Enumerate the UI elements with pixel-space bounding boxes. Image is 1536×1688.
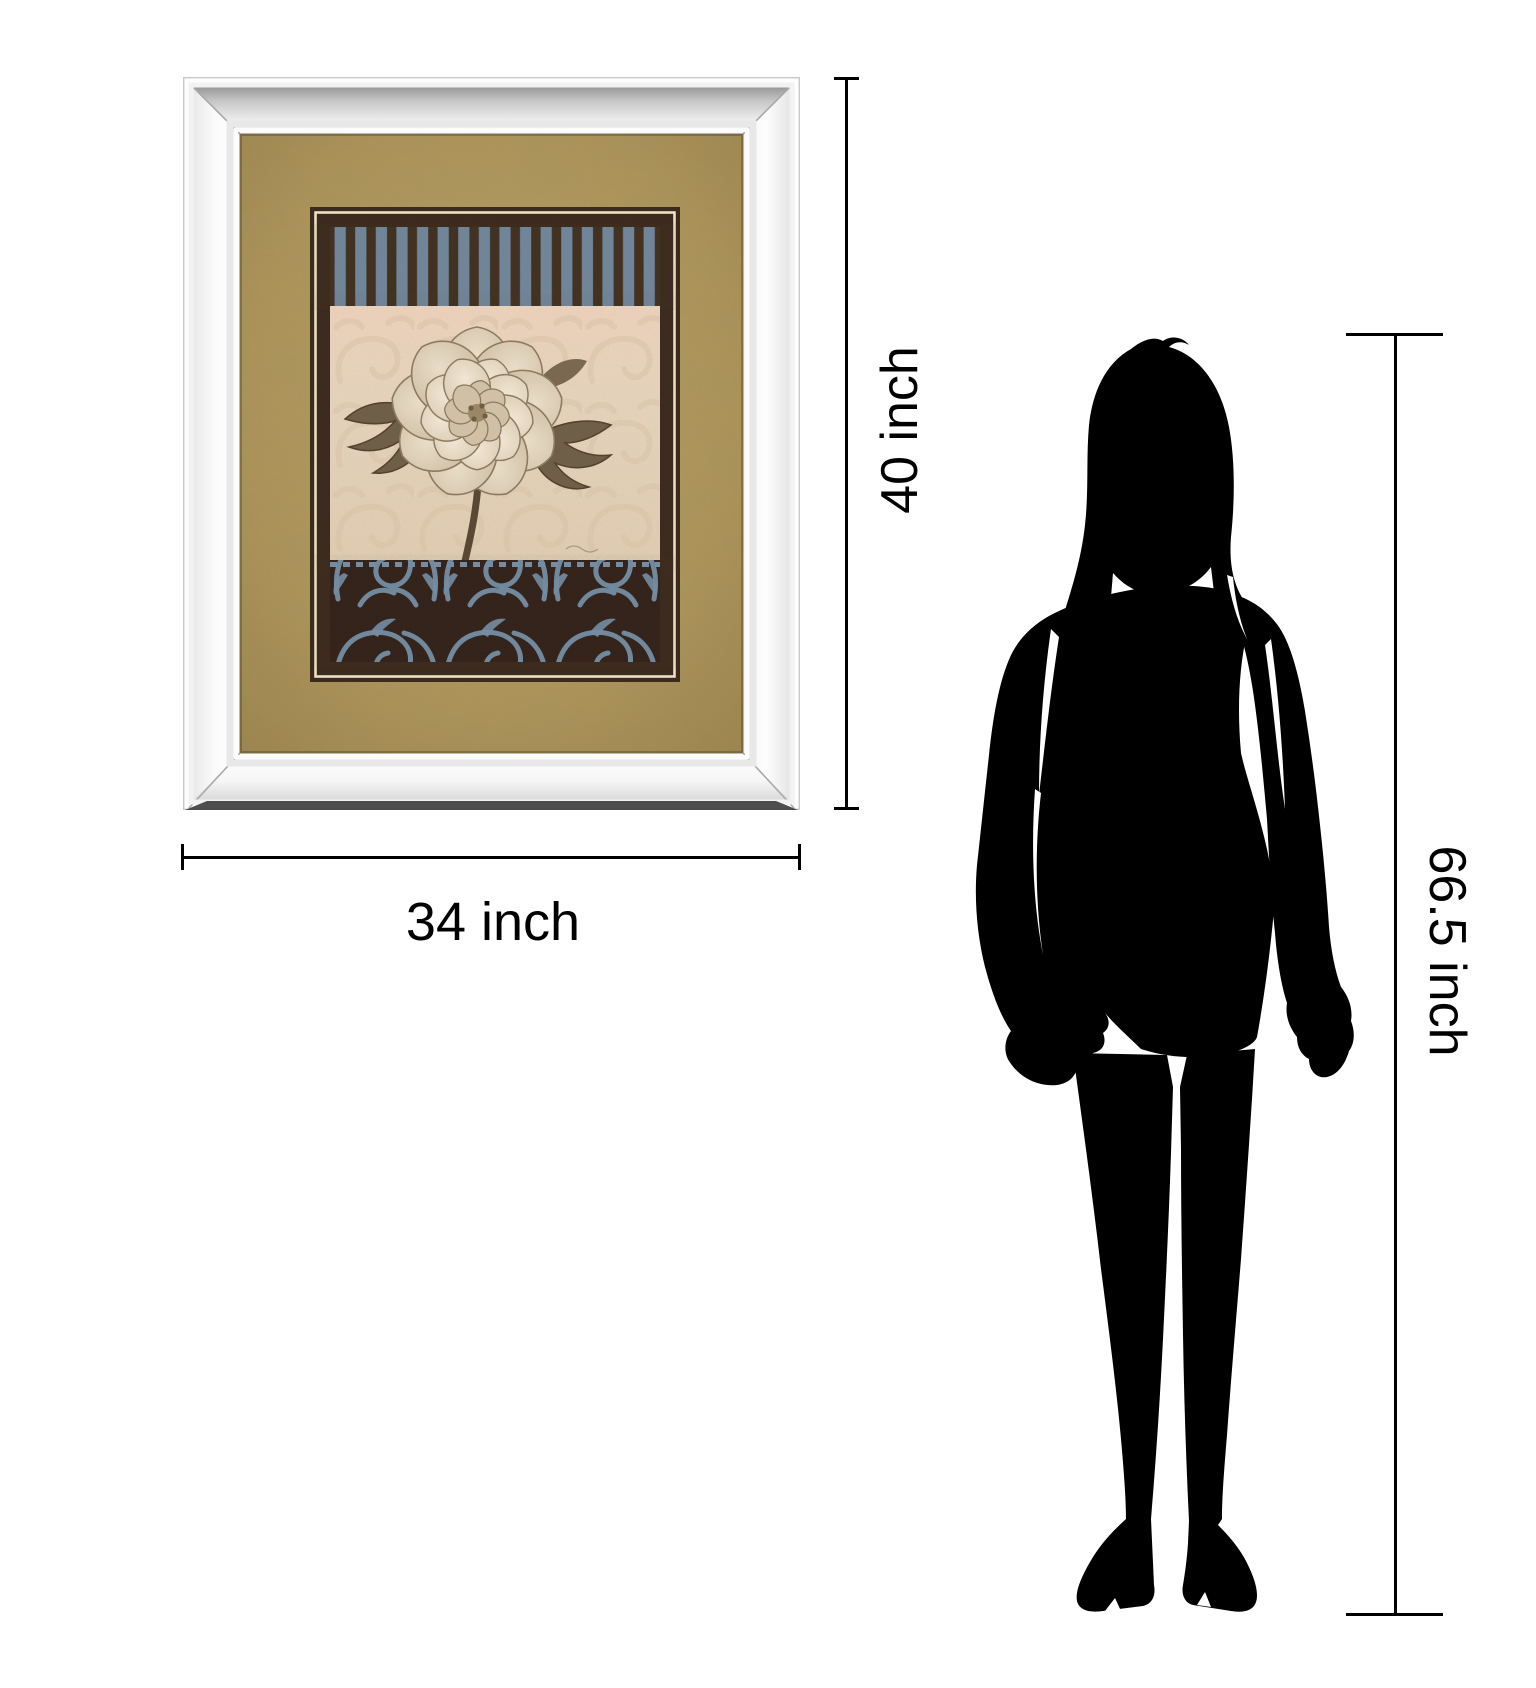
art-print xyxy=(310,207,680,682)
artwork-height-label: 40 inch xyxy=(873,343,927,517)
person-silhouette xyxy=(935,337,1360,1612)
person-height-dimension-line xyxy=(1394,334,1397,1615)
artwork-width-dimension-cap-left xyxy=(181,844,184,870)
woman-silhouette-shape xyxy=(976,338,1354,1612)
artwork-height-dimension-line xyxy=(845,78,848,808)
artwork-height-dimension-cap-bottom xyxy=(834,807,859,810)
artwork-height-dimension-cap-top xyxy=(834,77,859,80)
person-height-dimension-cap-bottom xyxy=(1346,1613,1443,1616)
framed-artwork xyxy=(183,77,800,810)
person-height-label: 66.5 inch xyxy=(1420,841,1474,1061)
artwork-width-dimension-line xyxy=(182,856,800,859)
artwork-width-label: 34 inch xyxy=(341,894,645,950)
framed-artwork-image xyxy=(183,77,800,810)
person-height-dimension-cap-top xyxy=(1346,333,1443,336)
frame-bottom-shadow xyxy=(185,801,798,810)
artwork-width-dimension-cap-right xyxy=(798,844,801,870)
product-size-figure: { "page": { "background_color": "#ffffff… xyxy=(0,0,1536,1688)
